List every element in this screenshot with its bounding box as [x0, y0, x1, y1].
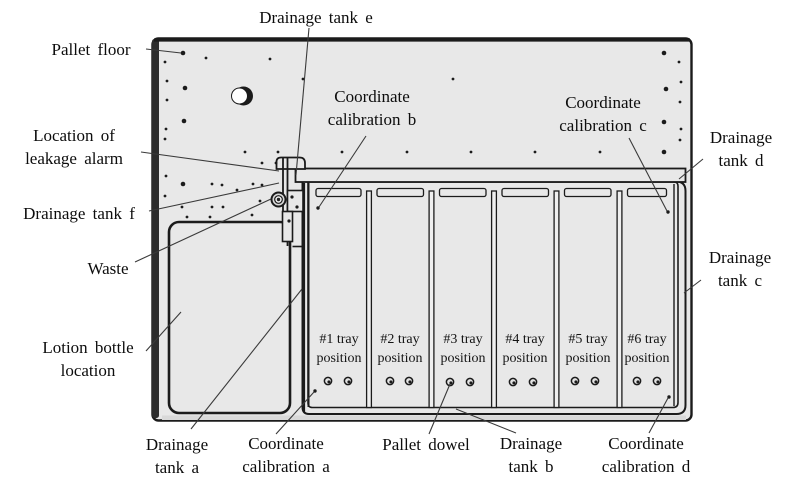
tray-position-2-label: #2 tray position: [377, 330, 422, 368]
label-drainage-tank-b: Drainage tank b: [500, 432, 562, 478]
tray-number: #2 tray: [377, 330, 422, 349]
floor-dot: [209, 216, 212, 219]
tray-notch: [440, 189, 487, 197]
pallet-dowel-center: [408, 380, 411, 383]
floor-dot: [236, 189, 239, 192]
divider: [367, 191, 372, 408]
floor-dot: [261, 162, 264, 165]
tray-position-6-label: #6 tray position: [624, 330, 669, 368]
pallet-dowel-center: [594, 380, 597, 383]
label-drainage-tank-f: Drainage tank f: [23, 202, 135, 225]
waste-bolt-center: [277, 198, 280, 201]
label-text: calibration c: [559, 114, 647, 137]
floor-dot: [165, 128, 168, 131]
label-waste: Waste: [87, 257, 128, 280]
label-text: Drainage: [146, 433, 208, 456]
tray-number: #1 tray: [316, 330, 361, 349]
floor-dot: [470, 151, 473, 154]
label-text: calibration b: [328, 108, 416, 131]
floor-dot: [277, 151, 280, 154]
label-text: tank b: [500, 455, 562, 478]
pallet-dowel-center: [574, 380, 577, 383]
tray-notch: [316, 189, 361, 197]
pallet-diagram: [0, 0, 787, 486]
pallet-dowel-center: [656, 380, 659, 383]
label-pallet-floor: Pallet floor: [51, 38, 130, 61]
pallet-dowel-center: [469, 381, 472, 384]
label-text: Pallet floor: [51, 38, 130, 61]
floor-dot: [244, 151, 247, 154]
label-text: Drainage tank f: [23, 202, 135, 225]
label-text: tank a: [146, 456, 208, 479]
label-lotion-bottle-location: Lotion bottle location: [42, 336, 133, 382]
floor-dot: [662, 150, 667, 155]
tray-position-1-label: #1 tray position: [316, 330, 361, 368]
pallet-dowel-center: [347, 380, 350, 383]
label-text: Location of: [25, 124, 123, 147]
floor-dot: [221, 184, 224, 187]
label-text: Drainage: [710, 126, 772, 149]
label-location-of-leakage-alarm: Location of leakage alarm: [25, 124, 123, 170]
label-text: Drainage: [709, 246, 771, 269]
floor-dot: [222, 206, 225, 209]
floor-dot: [166, 80, 169, 83]
floor-dot: [186, 216, 189, 219]
pallet-dowel-center: [532, 381, 535, 384]
label-text: tank d: [710, 149, 772, 172]
label-coordinate-calibration-c: Coordinate calibration c: [559, 91, 647, 137]
pallet-floor-hole: [232, 87, 254, 106]
pallet-dowel-center: [327, 380, 330, 383]
label-text: calibration a: [242, 455, 330, 478]
tray-word: position: [316, 349, 361, 368]
floor-dot: [252, 183, 255, 186]
pallet-left-edge: [152, 39, 159, 418]
floor-dot: [662, 120, 667, 125]
tray-position-3-label: #3 tray position: [440, 330, 485, 368]
tray-number: #3 tray: [440, 330, 485, 349]
floor-dot: [534, 151, 537, 154]
floor-dot: [164, 61, 167, 64]
pallet-bottom-lip: [162, 416, 686, 421]
floor-dot: [678, 61, 681, 64]
floor-dot: [680, 128, 683, 131]
floor-dot: [269, 58, 272, 61]
label-text: Pallet dowel: [382, 433, 470, 456]
floor-dot: [452, 78, 455, 81]
floor-dot: [275, 162, 278, 165]
label-coordinate-calibration-d: Coordinate calibration d: [602, 432, 690, 478]
tray-word: position: [624, 349, 669, 368]
floor-dot: [287, 219, 290, 222]
alarm-lower-bar: [283, 212, 293, 242]
tray-word: position: [502, 349, 547, 368]
label-text: leakage alarm: [25, 147, 123, 170]
floor-dot: [164, 195, 167, 198]
label-text: Drainage tank e: [259, 6, 373, 29]
label-text: tank c: [709, 269, 771, 292]
floor-dot: [181, 51, 186, 56]
label-drainage-tank-e: Drainage tank e: [259, 6, 373, 29]
floor-dot: [181, 182, 186, 187]
floor-dot: [251, 214, 254, 217]
floor-dot: [182, 119, 187, 124]
label-text: Lotion bottle: [42, 336, 133, 359]
label-drainage-tank-a: Drainage tank a: [146, 433, 208, 479]
label-text: Drainage: [500, 432, 562, 455]
tray-word: position: [440, 349, 485, 368]
floor-dot: [406, 151, 409, 154]
tray-position-5-label: #5 tray position: [565, 330, 610, 368]
lotion-bottle-recess: [169, 222, 290, 413]
floor-dot: [679, 139, 682, 142]
divider: [429, 191, 434, 408]
label-coordinate-calibration-a: Coordinate calibration a: [242, 432, 330, 478]
floor-dot: [205, 57, 208, 60]
floor-dot: [166, 99, 169, 102]
tray-word: position: [565, 349, 610, 368]
tray-number: #5 tray: [565, 330, 610, 349]
divider: [554, 191, 559, 408]
divider: [492, 191, 497, 408]
floor-dot: [599, 151, 602, 154]
tray-notch: [628, 189, 667, 197]
label-drainage-tank-d: Drainage tank d: [710, 126, 772, 172]
floor-dot: [679, 101, 682, 104]
tray-number: #6 tray: [624, 330, 669, 349]
tray-notch: [377, 189, 424, 197]
tray-notch: [502, 189, 549, 197]
pallet-dowel-center: [636, 380, 639, 383]
floor-dot: [259, 200, 262, 203]
floor-dot: [165, 175, 168, 178]
hole-opening: [232, 88, 248, 104]
floor-dot: [664, 87, 669, 92]
tray-number: #4 tray: [502, 330, 547, 349]
label-pallet-dowel: Pallet dowel: [382, 433, 470, 456]
tray-word: position: [377, 349, 422, 368]
label-text: Coordinate: [242, 432, 330, 455]
label-text: calibration d: [602, 455, 690, 478]
label-text: Coordinate: [328, 85, 416, 108]
top-rail-drainage-e: [296, 169, 686, 183]
floor-dot: [211, 206, 214, 209]
figure-canvas: Pallet floor Drainage tank e Location of…: [0, 0, 787, 486]
floor-dot: [183, 86, 188, 91]
tray-notch: [565, 189, 612, 197]
alarm-tab-block: [277, 158, 306, 170]
floor-dot: [290, 195, 293, 198]
label-text: Coordinate: [559, 91, 647, 114]
floor-dot: [341, 151, 344, 154]
tray-position-4-label: #4 tray position: [502, 330, 547, 368]
label-text: Waste: [87, 257, 128, 280]
divider: [617, 191, 622, 408]
floor-dot: [211, 183, 214, 186]
floor-dot: [680, 81, 683, 84]
label-text: location: [42, 359, 133, 382]
floor-dot: [164, 138, 167, 141]
pallet-dowel-center: [389, 380, 392, 383]
floor-dot: [181, 206, 184, 209]
label-text: Coordinate: [602, 432, 690, 455]
label-coordinate-calibration-b: Coordinate calibration b: [328, 85, 416, 131]
alarm-plate-block: [288, 191, 304, 212]
floor-dot: [295, 205, 298, 208]
pallet-dowel-center: [512, 381, 515, 384]
floor-dot: [662, 51, 667, 56]
label-drainage-tank-c: Drainage tank c: [709, 246, 771, 292]
